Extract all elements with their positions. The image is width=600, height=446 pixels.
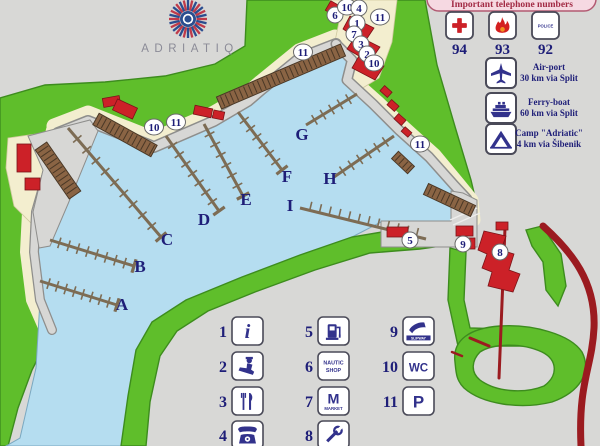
pier-label-D: D [198, 210, 210, 229]
info-icon: i [232, 317, 263, 345]
police-icon: POLICE [532, 12, 559, 39]
svg-text:SLIPWAY: SLIPWAY [411, 336, 427, 340]
map-marker-11[interactable]: 11 [371, 9, 390, 25]
wc-icon: WC [403, 352, 434, 380]
fire-icon [489, 12, 516, 39]
brand-text: ADRIATIQ [141, 43, 238, 55]
svg-text:11: 11 [415, 139, 425, 151]
svg-text:11: 11 [298, 47, 308, 59]
nautic-shop-icon: NAUTICSHOP [318, 352, 349, 380]
transport-line2: 4 km via Šibenik [517, 139, 581, 149]
legend-number: 2 [219, 359, 227, 376]
svg-text:NAUTIC: NAUTIC [323, 361, 343, 367]
transport-line2: 60 km via Split [520, 108, 578, 118]
svg-text:8: 8 [497, 247, 503, 259]
map-marker-10[interactable]: 10 [145, 119, 164, 135]
pier-label-A: A [116, 295, 129, 314]
svg-text:10: 10 [149, 122, 161, 134]
slipway-icon: SLIPWAY [403, 317, 434, 345]
legend-number: 7 [305, 394, 313, 411]
pier-label-C: C [161, 230, 173, 249]
pier-label-I: I [287, 196, 294, 215]
map-marker-11[interactable]: 11 [411, 136, 430, 152]
tent-icon [486, 124, 516, 154]
pier-label-G: G [295, 125, 308, 144]
svg-text:i: i [245, 321, 251, 343]
building [456, 226, 473, 236]
map-marker-11[interactable]: 11 [294, 44, 313, 60]
svg-text:POLICE: POLICE [538, 23, 554, 28]
building [212, 110, 224, 120]
map-marker-11[interactable]: 11 [167, 114, 186, 130]
svg-text:11: 11 [375, 12, 385, 24]
transport-line2: 30 km via Split [520, 73, 578, 83]
info-panel-title: Important telephone numbers [451, 0, 573, 10]
fuel-pump-icon [318, 317, 349, 345]
legend-number: 10 [382, 359, 398, 376]
svg-text:4: 4 [356, 3, 362, 15]
marina-map: ADRIATIQ 61041117321011101111598 ABCDEFG… [0, 0, 600, 446]
svg-text:WC: WC [409, 361, 429, 374]
svg-text:5: 5 [407, 235, 413, 247]
wrench-icon [318, 421, 349, 446]
market-icon: MMARKET [318, 387, 349, 415]
red-cross-icon [446, 12, 473, 39]
legend-number: 5 [305, 324, 313, 341]
svg-text:MARKET: MARKET [324, 406, 343, 411]
pier-label-E: E [240, 190, 251, 209]
legend-number: 1 [219, 324, 227, 341]
map-marker-9[interactable]: 9 [455, 236, 471, 252]
phone-number: 94 [452, 42, 468, 58]
parking-icon: P [403, 387, 434, 415]
ferry-icon [486, 93, 516, 123]
restaurant-icon [232, 387, 263, 415]
customs-officer-icon [232, 352, 263, 380]
pier-label-B: B [134, 257, 145, 276]
svg-text:9: 9 [460, 239, 466, 251]
pier-label-F: F [282, 167, 292, 186]
transport-line1: Camp "Adriatic" [515, 128, 583, 138]
svg-text:SHOP: SHOP [326, 368, 342, 374]
map-marker-10[interactable]: 10 [365, 55, 384, 71]
transport-line1: Ferry-boat [528, 97, 570, 107]
map-marker-8[interactable]: 8 [492, 244, 508, 260]
building [496, 222, 508, 230]
svg-text:11: 11 [171, 117, 181, 129]
phone-number: 93 [495, 42, 510, 58]
legend-number: 9 [390, 324, 398, 341]
transport-line1: Air-port [533, 62, 565, 72]
building [25, 178, 40, 190]
legend-number: 6 [305, 359, 313, 376]
telephone-icon [232, 421, 263, 446]
pier-label-H: H [323, 169, 336, 188]
map-marker-5[interactable]: 5 [402, 232, 418, 248]
building [17, 144, 31, 172]
map-marker-4[interactable]: 4 [351, 0, 367, 16]
svg-text:P: P [413, 392, 424, 411]
legend-number: 11 [383, 394, 398, 411]
phone-number: 92 [538, 42, 553, 58]
svg-text:10: 10 [369, 58, 381, 70]
svg-text:6: 6 [332, 10, 338, 22]
marina-map-screen: ADRIATIQ 61041117321011101111598 ABCDEFG… [0, 0, 600, 446]
legend-number: 3 [219, 394, 227, 411]
legend-number: 8 [305, 428, 313, 445]
airplane-icon [486, 58, 516, 88]
legend-number: 4 [219, 428, 227, 445]
